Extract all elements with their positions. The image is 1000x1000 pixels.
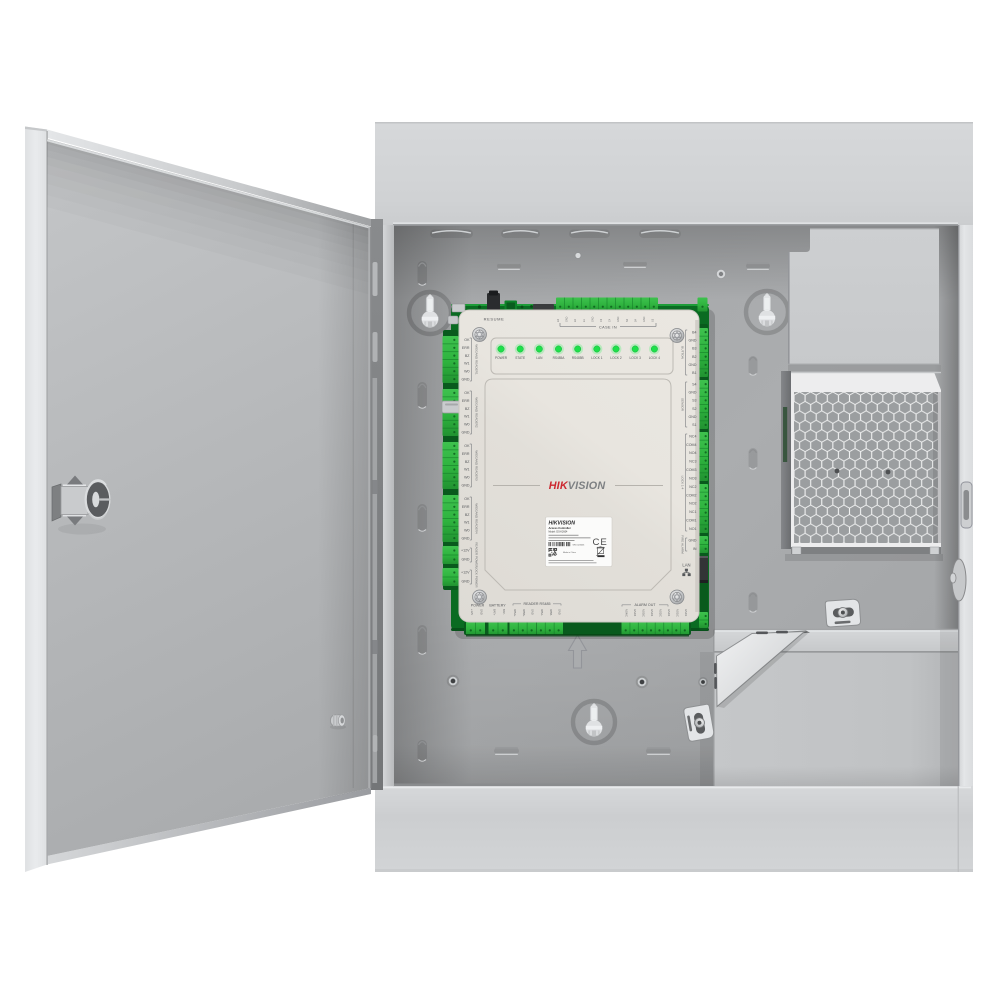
svg-text:OK: OK <box>464 497 470 501</box>
svg-text:S4: S4 <box>692 382 696 386</box>
svg-text:B4: B4 <box>692 330 696 334</box>
svg-text:GND: GND <box>566 316 569 322</box>
svg-text:LOCK 2: LOCK 2 <box>610 356 622 360</box>
svg-text:W0: W0 <box>464 529 469 533</box>
svg-text:B3: B3 <box>692 347 696 351</box>
svg-text:OK: OK <box>464 444 470 448</box>
svg-text:W0: W0 <box>464 369 469 373</box>
svg-text:RS485B: RS485B <box>572 356 584 360</box>
svg-text:BAT+: BAT+ <box>492 609 496 616</box>
svg-text:GND3: GND3 <box>650 609 654 617</box>
svg-text:GND: GND <box>462 558 470 562</box>
svg-text:B1: B1 <box>692 371 696 375</box>
svg-text:LOCK 4: LOCK 4 <box>649 356 661 360</box>
svg-text:LAN: LAN <box>536 356 543 360</box>
svg-text:GND: GND <box>689 363 697 367</box>
svg-text:NO3: NO3 <box>689 477 696 481</box>
svg-text:RESUME: RESUME <box>484 317 505 322</box>
svg-text:FIRE ALARM: FIRE ALARM <box>681 535 685 554</box>
svg-text:BZ: BZ <box>465 354 470 358</box>
svg-text:WIEGAND READER2: WIEGAND READER2 <box>475 397 479 428</box>
svg-text:HIKVISION: HIKVISION <box>549 480 606 492</box>
svg-text:BATTERY: BATTERY <box>489 604 506 608</box>
svg-text:WIEGAND READER1: WIEGAND READER1 <box>475 344 479 375</box>
svg-text:NO1: NO1 <box>689 527 696 531</box>
svg-text:GND: GND <box>617 316 620 322</box>
svg-text:GND: GND <box>689 539 697 543</box>
svg-text:485A-: 485A- <box>540 609 544 616</box>
svg-text:SENSOR: SENSOR <box>681 398 685 412</box>
svg-text:485B-: 485B- <box>549 609 553 616</box>
svg-text:RS485A: RS485A <box>553 356 566 360</box>
svg-text:Access Controller: Access Controller <box>549 526 571 530</box>
svg-text:W1: W1 <box>464 521 469 525</box>
svg-text:ERR: ERR <box>462 452 470 456</box>
svg-text:NO2/C: NO2/C <box>659 609 663 617</box>
svg-text:S1: S1 <box>692 423 696 427</box>
svg-text:GND4: GND4 <box>633 609 637 617</box>
svg-text:NC4: NC4 <box>689 434 696 438</box>
svg-text:GND: GND <box>689 390 697 394</box>
svg-text:W1: W1 <box>464 468 469 472</box>
svg-text:BUTTON: BUTTON <box>681 346 685 359</box>
svg-text:READER POWER: READER POWER <box>475 542 479 568</box>
svg-text:+12V: +12V <box>461 549 470 553</box>
svg-text:NO2: NO2 <box>689 502 696 506</box>
svg-text:OK: OK <box>464 338 470 342</box>
svg-text:GND: GND <box>462 377 470 381</box>
svg-text:READER RS485: READER RS485 <box>524 602 551 606</box>
svg-text:NO4/C: NO4/C <box>625 609 629 617</box>
svg-text:W0: W0 <box>464 422 469 426</box>
svg-text:Made in China: Made in China <box>563 552 577 554</box>
svg-text:S2: S2 <box>692 407 696 411</box>
svg-text:GND: GND <box>462 580 470 584</box>
svg-text:IN: IN <box>693 547 697 551</box>
svg-text:485A+: 485A+ <box>513 609 517 617</box>
svg-text:OK: OK <box>464 391 470 395</box>
svg-text:ERR: ERR <box>462 346 470 350</box>
svg-text:ERR: ERR <box>462 505 470 509</box>
svg-text:POWER: POWER <box>495 356 508 360</box>
svg-text:Model: DS-K2604: Model: DS-K2604 <box>549 530 569 533</box>
svg-text:GND: GND <box>591 316 594 322</box>
svg-text:NC2: NC2 <box>689 485 696 489</box>
svg-text:LAN: LAN <box>682 563 690 568</box>
svg-text:S/N 0123456: S/N 0123456 <box>573 545 586 547</box>
svg-text:COM4: COM4 <box>686 443 696 447</box>
svg-text:LOCK 1: LOCK 1 <box>591 356 603 360</box>
svg-text:W1: W1 <box>464 415 469 419</box>
svg-text:COM1: COM1 <box>686 519 696 523</box>
svg-text:NO1/C: NO1/C <box>675 609 679 617</box>
svg-text:BZ: BZ <box>465 460 470 464</box>
svg-text:CASE IN: CASE IN <box>599 326 617 330</box>
svg-text:NO3/C: NO3/C <box>642 609 646 617</box>
svg-text:WIEGAND READER3: WIEGAND READER3 <box>475 450 479 481</box>
svg-text:BZ: BZ <box>465 407 470 411</box>
svg-text:HIKVISION: HIKVISION <box>549 521 576 527</box>
svg-text:GND: GND <box>462 483 470 487</box>
svg-text:STATE: STATE <box>515 356 525 360</box>
svg-text:GND: GND <box>462 430 470 434</box>
svg-text:GND: GND <box>558 609 562 615</box>
svg-text:S3: S3 <box>692 399 696 403</box>
svg-text:CE: CE <box>593 537 608 548</box>
svg-text:LOCK POWER: LOCK POWER <box>475 567 479 589</box>
svg-text:COM3: COM3 <box>686 468 696 472</box>
svg-text:ALARM OUT: ALARM OUT <box>635 603 657 607</box>
svg-text:GND: GND <box>531 609 535 615</box>
svg-text:GND2: GND2 <box>667 609 671 617</box>
svg-text:NO4: NO4 <box>689 451 696 455</box>
svg-text:NC3: NC3 <box>689 460 696 464</box>
svg-text:COM2: COM2 <box>686 493 696 497</box>
svg-text:W1: W1 <box>464 362 469 366</box>
svg-text:B2: B2 <box>692 355 696 359</box>
svg-text:LOCK 1-4: LOCK 1-4 <box>681 476 685 490</box>
svg-text:BZ: BZ <box>465 513 470 517</box>
svg-text:485B+: 485B+ <box>522 609 526 617</box>
svg-text:W0: W0 <box>464 475 469 479</box>
svg-text:GND: GND <box>462 536 470 540</box>
svg-text:GND: GND <box>643 316 646 322</box>
svg-text:WIEGAND READER4: WIEGAND READER4 <box>475 503 479 534</box>
svg-text:LOCK 3: LOCK 3 <box>630 356 642 360</box>
svg-text:NC1: NC1 <box>689 510 696 514</box>
svg-text:+12V: +12V <box>470 609 474 615</box>
svg-text:ERR: ERR <box>462 399 470 403</box>
svg-text:GND: GND <box>689 338 697 342</box>
svg-text:GND1: GND1 <box>684 609 688 617</box>
svg-text:GND: GND <box>689 415 697 419</box>
svg-text:BAT-: BAT- <box>502 609 506 615</box>
svg-text:GND: GND <box>479 609 483 615</box>
svg-text:+12V: +12V <box>461 571 470 575</box>
svg-text:POWER: POWER <box>471 604 485 608</box>
